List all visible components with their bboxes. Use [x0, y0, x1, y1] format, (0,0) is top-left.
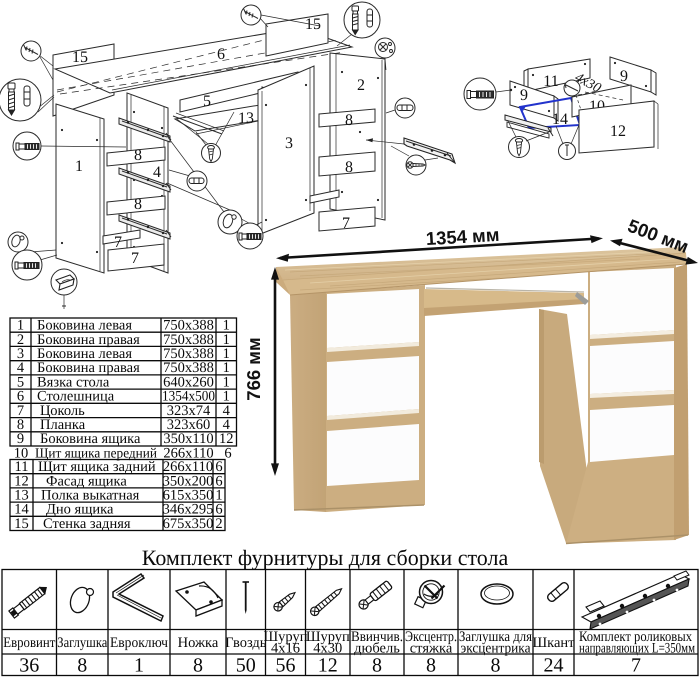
svg-text:8: 8	[345, 112, 353, 129]
svg-text:13: 13	[238, 110, 254, 127]
svg-text:7: 7	[631, 655, 641, 677]
svg-text:12: 12	[610, 123, 626, 140]
svg-text:8: 8	[372, 655, 382, 677]
svg-text:15: 15	[14, 516, 29, 532]
svg-text:36: 36	[19, 655, 39, 677]
svg-text:24: 24	[544, 655, 564, 677]
svg-text:Евроключ: Евроключ	[110, 635, 168, 651]
svg-text:9: 9	[620, 68, 628, 85]
svg-text:8: 8	[134, 147, 142, 164]
svg-text:Комплект фурнитуры для сборки: Комплект фурнитуры для сборки стола	[142, 545, 509, 570]
svg-text:6: 6	[217, 46, 225, 63]
svg-text:766 мм: 766 мм	[243, 337, 264, 400]
svg-text:8: 8	[426, 655, 436, 677]
svg-text:8: 8	[193, 655, 203, 677]
svg-text:8: 8	[134, 196, 142, 213]
svg-text:1: 1	[75, 158, 83, 175]
svg-text:2: 2	[215, 516, 222, 532]
svg-text:Ножка: Ножка	[178, 635, 219, 651]
svg-text:Шкант: Шкант	[533, 635, 576, 651]
svg-text:11: 11	[543, 73, 558, 90]
svg-text:5: 5	[203, 93, 211, 110]
svg-text:1: 1	[134, 655, 144, 677]
svg-text:50: 50	[236, 655, 256, 677]
svg-text:14: 14	[552, 111, 568, 128]
svg-text:4: 4	[153, 164, 161, 181]
svg-text:675х350: 675х350	[163, 516, 214, 532]
svg-text:Гвоздь: Гвоздь	[225, 635, 267, 651]
svg-text:Заглушка: Заглушка	[57, 635, 107, 651]
svg-text:12: 12	[318, 655, 338, 677]
svg-text:3: 3	[285, 135, 293, 152]
svg-text:56: 56	[276, 655, 296, 677]
svg-text:Евровинт: Евровинт	[3, 635, 56, 651]
svg-text:Стенка задняя: Стенка задняя	[43, 516, 131, 532]
svg-text:8: 8	[345, 159, 353, 176]
svg-text:8: 8	[77, 655, 87, 677]
svg-text:2: 2	[357, 77, 365, 94]
svg-text:8: 8	[491, 655, 501, 677]
svg-text:9: 9	[520, 87, 528, 104]
svg-text:7: 7	[131, 250, 139, 267]
svg-text:7: 7	[342, 215, 350, 232]
svg-text:Боковина ящика: Боковина ящика	[40, 431, 141, 447]
svg-text:1354 мм: 1354 мм	[425, 224, 500, 249]
